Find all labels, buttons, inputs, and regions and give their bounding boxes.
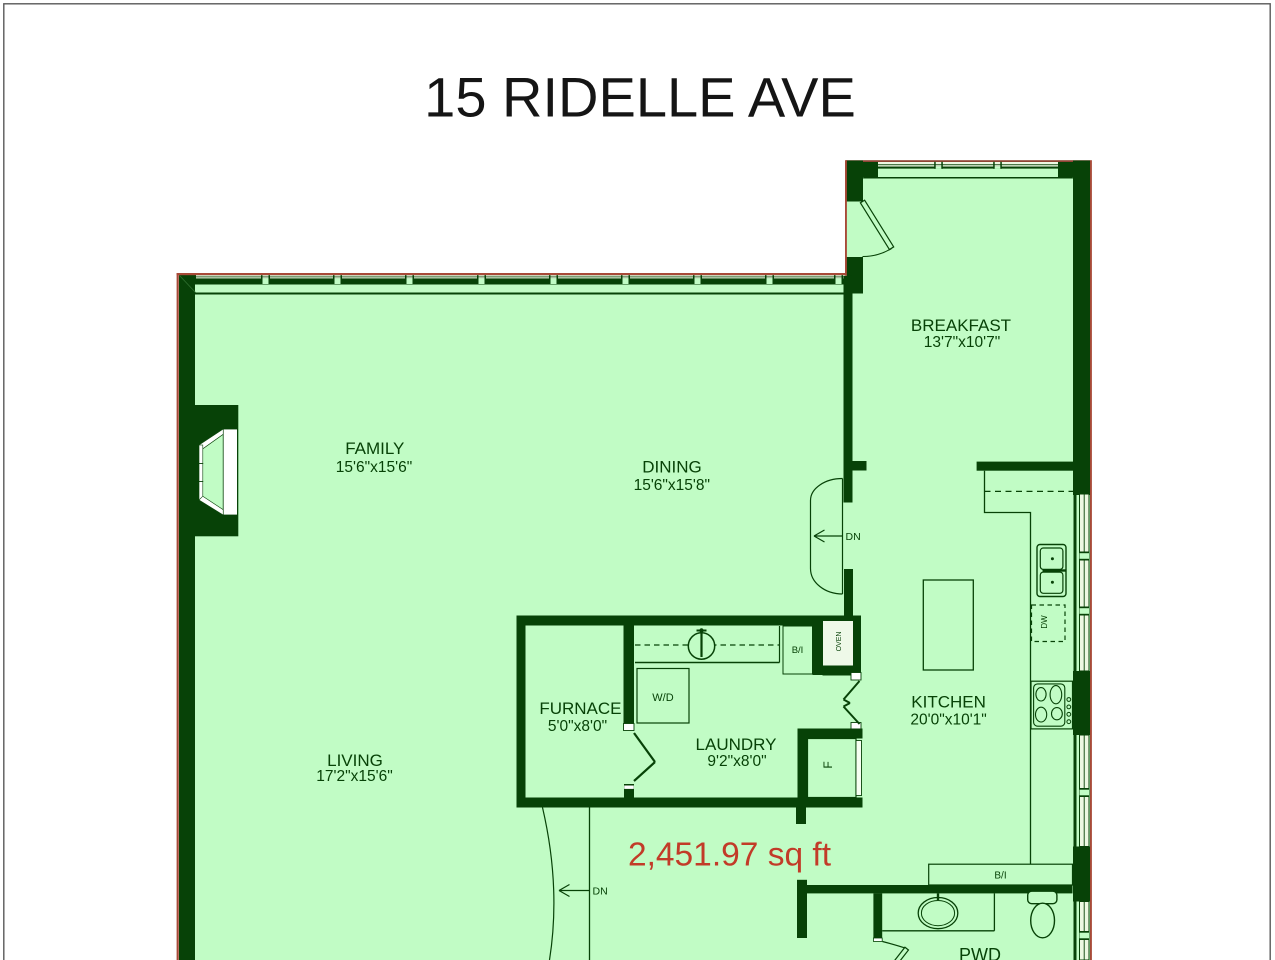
svg-text:FAMILY: FAMILY — [345, 439, 404, 458]
svg-text:F: F — [821, 761, 835, 768]
svg-text:15'6"x15'6": 15'6"x15'6" — [336, 459, 412, 476]
svg-text:B/I: B/I — [792, 645, 804, 656]
svg-text:15'6"x15'8": 15'6"x15'8" — [634, 477, 710, 494]
svg-text:5'0"x8'0": 5'0"x8'0" — [548, 718, 607, 735]
svg-text:9'2"x8'0": 9'2"x8'0" — [707, 753, 766, 770]
svg-text:2,451.97 sq ft: 2,451.97 sq ft — [628, 837, 832, 874]
svg-text:KITCHEN: KITCHEN — [911, 693, 986, 712]
svg-text:DN: DN — [846, 531, 861, 543]
svg-text:B/I: B/I — [994, 871, 1006, 882]
svg-text:13'7"x10'7": 13'7"x10'7" — [924, 334, 1000, 351]
svg-text:20'0"x10'1": 20'0"x10'1" — [910, 712, 986, 729]
svg-text:PWD: PWD — [959, 945, 1001, 960]
svg-text:15 RIDELLE AVE: 15 RIDELLE AVE — [424, 66, 856, 129]
svg-text:DINING: DINING — [642, 458, 702, 477]
svg-text:FURNACE: FURNACE — [539, 699, 621, 718]
svg-text:LAUNDRY: LAUNDRY — [696, 735, 777, 754]
svg-text:DN: DN — [593, 886, 608, 898]
svg-text:OVEN: OVEN — [836, 632, 843, 652]
svg-text:BREAKFAST: BREAKFAST — [911, 316, 1011, 335]
svg-text:17'2"x15'6": 17'2"x15'6" — [316, 768, 392, 785]
svg-text:W/D: W/D — [652, 692, 673, 704]
svg-text:DW: DW — [1040, 615, 1049, 629]
